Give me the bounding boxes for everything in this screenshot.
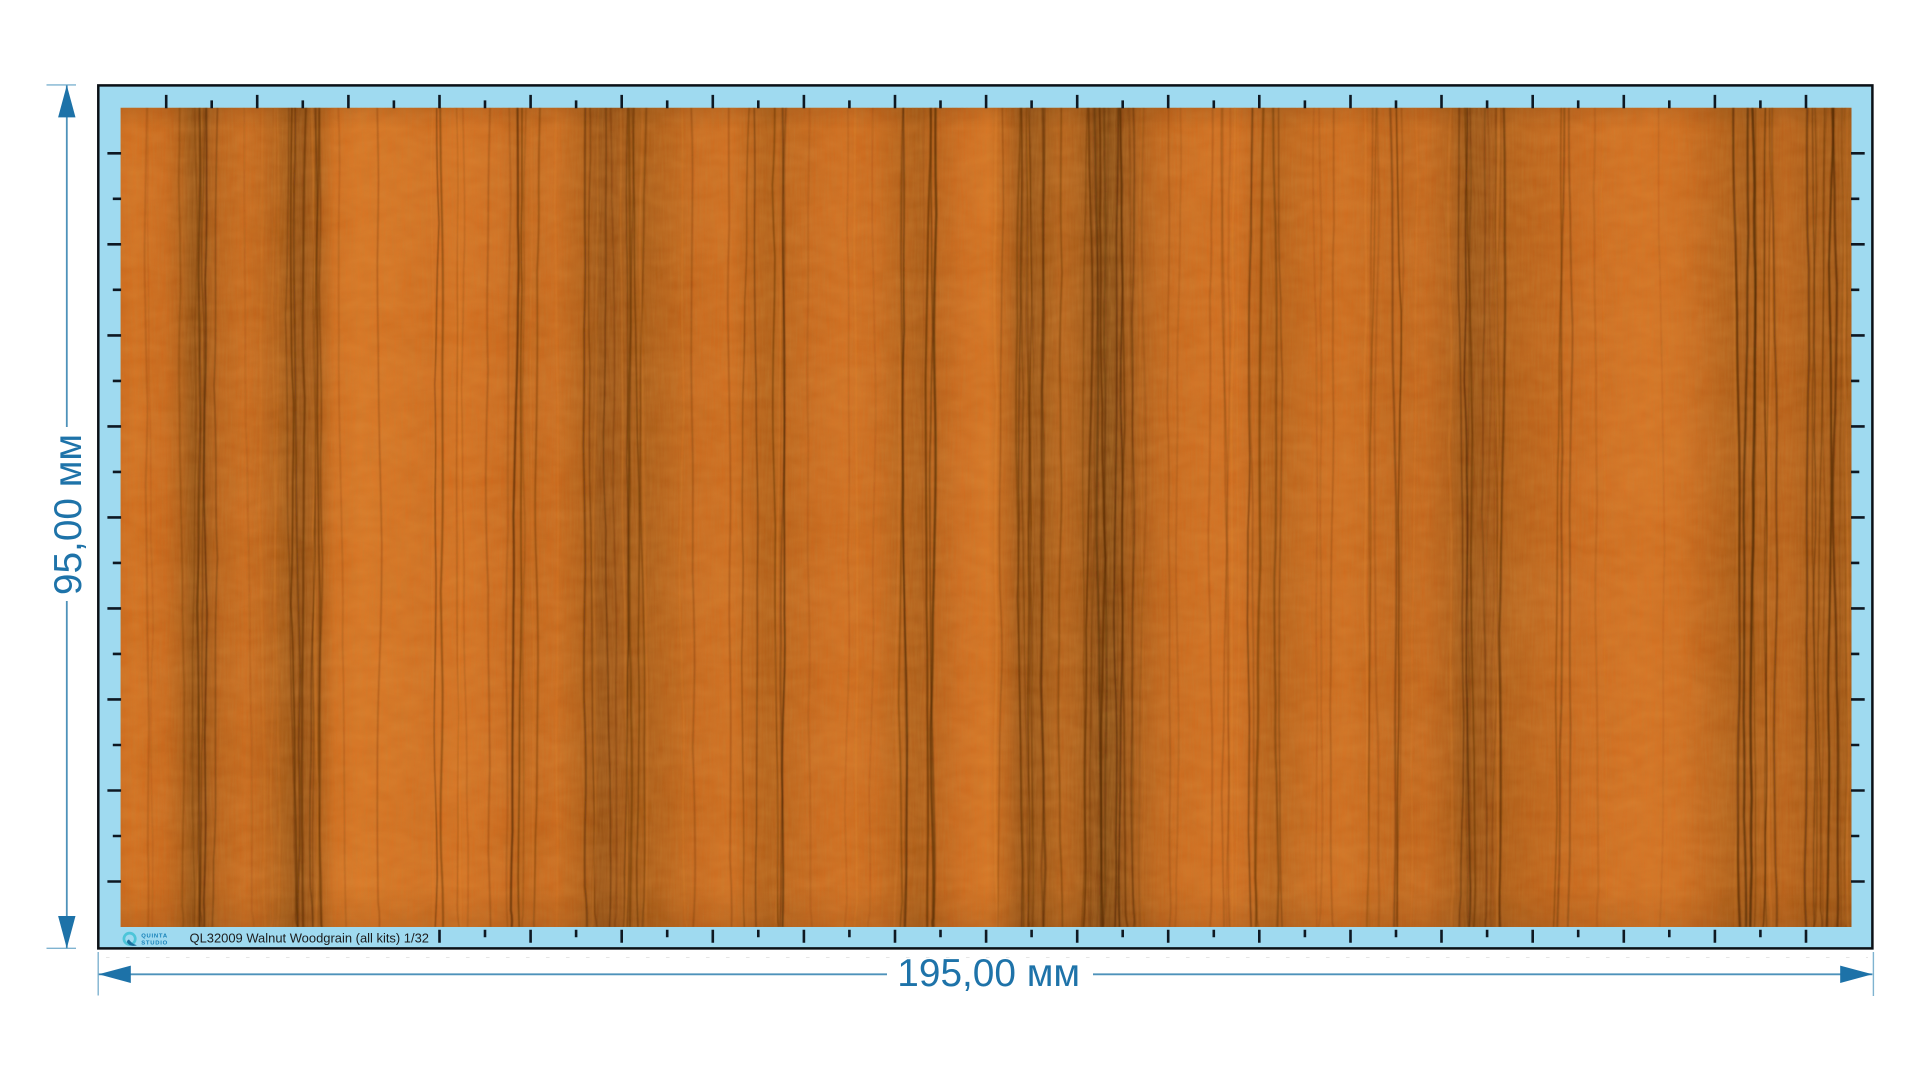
- svg-text:95,00 мм: 95,00 мм: [47, 434, 90, 595]
- svg-text:QL32009 Walnut Woodgrain (all: QL32009 Walnut Woodgrain (all kits) 1/32: [190, 931, 429, 946]
- svg-text:195,00 мм: 195,00 мм: [897, 952, 1080, 995]
- svg-text:STUDIO: STUDIO: [141, 940, 168, 946]
- svg-text:QUINTA: QUINTA: [141, 933, 168, 939]
